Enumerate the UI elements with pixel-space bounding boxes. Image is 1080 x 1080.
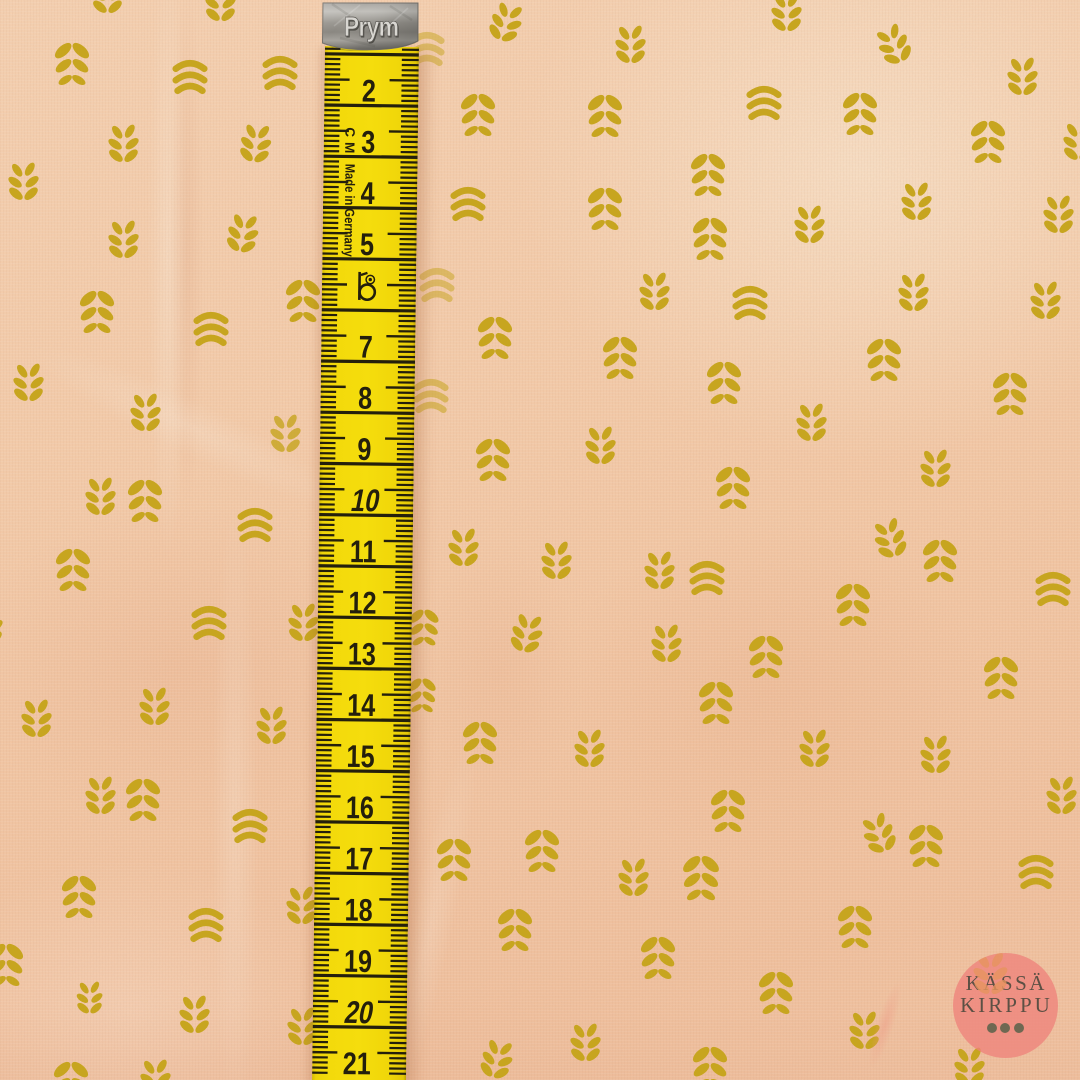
svg-text:11: 11 <box>349 535 376 571</box>
svg-text:9: 9 <box>357 432 371 468</box>
svg-text:21: 21 <box>342 1046 371 1080</box>
svg-text:Prym: Prym <box>344 12 398 42</box>
svg-text:5: 5 <box>359 227 374 263</box>
svg-text:12: 12 <box>348 586 376 622</box>
svg-text:Made in Germany: Made in Germany <box>341 164 357 258</box>
svg-text:19: 19 <box>343 944 371 980</box>
svg-text:20: 20 <box>341 996 376 1031</box>
svg-text:7: 7 <box>358 330 372 366</box>
svg-text:13: 13 <box>347 637 375 673</box>
svg-text:8: 8 <box>357 381 371 417</box>
svg-text:15: 15 <box>346 739 375 775</box>
svg-text:10: 10 <box>348 484 383 519</box>
svg-text:4: 4 <box>360 176 375 212</box>
svg-text:2: 2 <box>361 74 375 110</box>
svg-text:17: 17 <box>345 842 373 878</box>
svg-text:18: 18 <box>344 893 372 929</box>
svg-text:16: 16 <box>345 791 373 827</box>
svg-text:3: 3 <box>361 125 375 161</box>
svg-text:Prym: Prym <box>345 13 399 43</box>
svg-text:14: 14 <box>346 688 375 724</box>
svg-text:CM: CM <box>342 127 357 158</box>
